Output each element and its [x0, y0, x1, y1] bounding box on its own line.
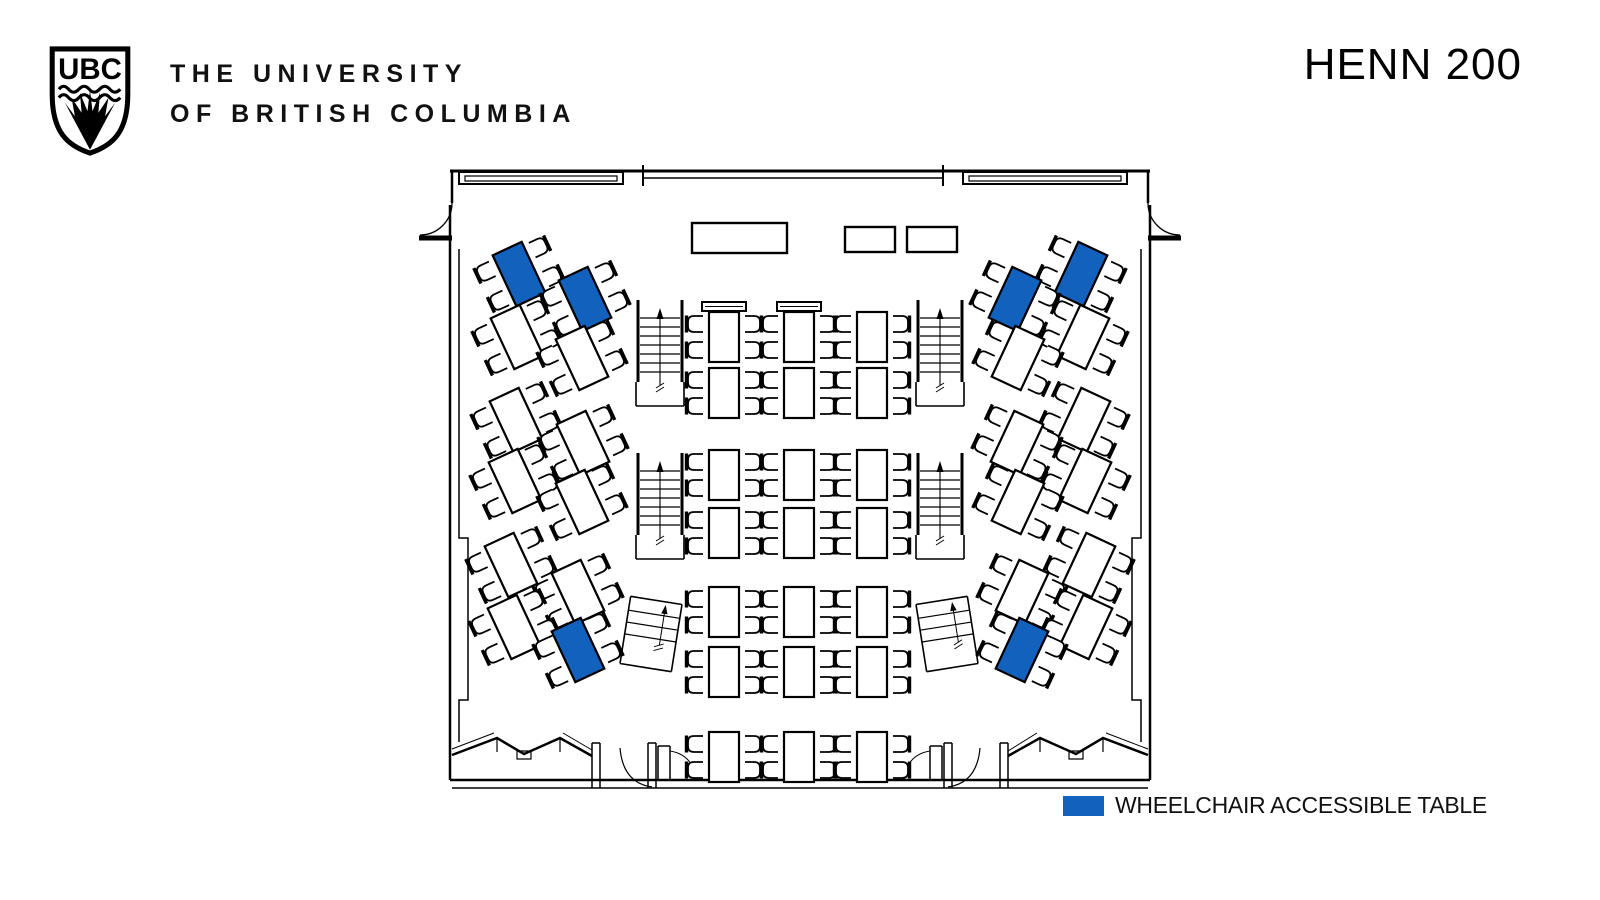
chair [745, 512, 762, 529]
chair [1107, 407, 1129, 429]
table [835, 647, 910, 697]
chair [973, 493, 995, 515]
chair [762, 372, 779, 389]
chair [835, 316, 852, 333]
chair [687, 398, 704, 415]
chair [745, 651, 762, 668]
chair [835, 372, 852, 389]
chair [893, 736, 910, 753]
page: UBC THE UNIVERSITY OF BRITISH COLUMBIA H… [0, 0, 1600, 900]
chair [893, 762, 910, 779]
chair [550, 374, 572, 396]
chair [1096, 643, 1118, 665]
chair [893, 512, 910, 529]
chair [606, 434, 628, 456]
chair [745, 591, 762, 608]
chair [526, 382, 548, 404]
chair [745, 538, 762, 555]
table [687, 508, 762, 558]
chair [983, 261, 1005, 283]
legend-label: WHEELCHAIR ACCESSIBLE TABLE [1115, 792, 1487, 819]
chair [605, 349, 627, 371]
chair [687, 538, 704, 555]
table [468, 439, 561, 522]
chair [893, 617, 910, 634]
chair [972, 434, 994, 456]
chair [835, 342, 852, 359]
table [470, 295, 563, 378]
chair [977, 583, 999, 605]
chair [687, 617, 704, 634]
chair [469, 614, 491, 636]
table [835, 312, 910, 362]
chair [745, 454, 762, 471]
table [687, 647, 762, 697]
chair [835, 512, 852, 529]
chair [893, 591, 910, 608]
legend: WHEELCHAIR ACCESSIBLE TABLE [1063, 792, 1487, 819]
chair [687, 591, 704, 608]
chair [608, 290, 630, 312]
chair [537, 489, 559, 511]
chair [593, 405, 615, 427]
chair [893, 651, 910, 668]
up-arrow-icon [949, 601, 957, 611]
chair [990, 554, 1012, 576]
table [687, 450, 762, 500]
chair [762, 617, 779, 634]
table [971, 316, 1064, 399]
table [762, 732, 837, 782]
chair [485, 353, 507, 375]
chair [977, 641, 999, 663]
chair [745, 677, 762, 694]
chair [893, 398, 910, 415]
chair [483, 497, 505, 519]
chair [835, 677, 852, 694]
chair [1028, 518, 1050, 540]
table [835, 732, 910, 782]
table [535, 316, 628, 399]
chair [471, 407, 493, 429]
chair [474, 261, 496, 283]
table [835, 587, 910, 637]
chair [835, 538, 852, 555]
chair [835, 651, 852, 668]
chair [521, 527, 543, 549]
chair [893, 342, 910, 359]
chair [835, 454, 852, 471]
chair [762, 677, 779, 694]
table [762, 587, 837, 637]
table [535, 460, 628, 543]
chair [973, 349, 995, 371]
chair [546, 666, 568, 688]
chair [893, 372, 910, 389]
legend-swatch [1063, 796, 1104, 816]
floor-plan [0, 0, 1600, 900]
staircase [916, 300, 964, 406]
up-arrow-icon [657, 308, 664, 319]
chair [835, 591, 852, 608]
table [971, 460, 1064, 543]
chair [1108, 468, 1130, 490]
chair [745, 617, 762, 634]
chair [985, 405, 1007, 427]
table [687, 587, 762, 637]
chair [588, 554, 610, 576]
table [762, 508, 837, 558]
chair [835, 617, 852, 634]
mini-staircase [620, 596, 682, 671]
chair [487, 290, 509, 312]
table [762, 450, 837, 500]
table [1036, 295, 1129, 378]
chair [1049, 236, 1071, 258]
chair [1095, 497, 1117, 519]
chair [687, 736, 704, 753]
table [687, 312, 762, 362]
chair [1028, 374, 1050, 396]
table [835, 450, 910, 500]
table [687, 368, 762, 418]
chair [605, 493, 627, 515]
chair [687, 342, 704, 359]
chair [745, 480, 762, 497]
chair [550, 518, 572, 540]
chair [687, 372, 704, 389]
chair [893, 316, 910, 333]
chair [745, 342, 762, 359]
chair [893, 677, 910, 694]
mini-staircase [916, 596, 978, 671]
staircase [636, 300, 684, 406]
chair [687, 651, 704, 668]
chair [762, 538, 779, 555]
chair [762, 454, 779, 471]
privacy-screen [702, 302, 746, 311]
chair [762, 591, 779, 608]
chair [893, 538, 910, 555]
chair [762, 480, 779, 497]
chair [687, 480, 704, 497]
chair [470, 468, 492, 490]
av-box [845, 227, 895, 252]
chair [970, 290, 992, 312]
av-box [907, 227, 957, 252]
chair [893, 454, 910, 471]
chair [1106, 324, 1128, 346]
chair [762, 651, 779, 668]
chair [1032, 666, 1054, 688]
table [835, 368, 910, 418]
chair [745, 372, 762, 389]
chair [1057, 527, 1079, 549]
table [1038, 439, 1131, 522]
up-arrow-icon [657, 461, 664, 472]
chair [529, 236, 551, 258]
chair [1052, 382, 1074, 404]
chair [762, 316, 779, 333]
table [687, 732, 762, 782]
chair [745, 316, 762, 333]
chair [835, 762, 852, 779]
chair [687, 677, 704, 694]
table [762, 368, 837, 418]
chair [687, 762, 704, 779]
chair [479, 581, 501, 603]
chair [472, 324, 494, 346]
chair [687, 512, 704, 529]
chair [745, 736, 762, 753]
chair [1093, 353, 1115, 375]
chair [687, 316, 704, 333]
chair [762, 398, 779, 415]
table [762, 312, 837, 362]
chair [595, 261, 617, 283]
chair [1091, 290, 1113, 312]
up-arrow-icon [661, 604, 669, 614]
chair [466, 552, 488, 574]
chair [601, 583, 623, 605]
chair [1104, 261, 1126, 283]
chair [893, 480, 910, 497]
chair [762, 512, 779, 529]
staircase [636, 453, 684, 559]
table [835, 508, 910, 558]
chair [835, 480, 852, 497]
chair [1041, 489, 1063, 511]
chair [482, 643, 504, 665]
chair [1099, 581, 1121, 603]
privacy-screen [777, 302, 821, 311]
lectern [692, 223, 787, 253]
chair [745, 762, 762, 779]
chair [835, 398, 852, 415]
chair [1112, 552, 1134, 574]
up-arrow-icon [937, 308, 944, 319]
chair [762, 736, 779, 753]
chair [745, 398, 762, 415]
chair [762, 342, 779, 359]
chair [1109, 614, 1131, 636]
chair [687, 454, 704, 471]
table [762, 647, 837, 697]
up-arrow-icon [937, 461, 944, 472]
chair [835, 736, 852, 753]
chair [762, 762, 779, 779]
staircase [916, 453, 964, 559]
